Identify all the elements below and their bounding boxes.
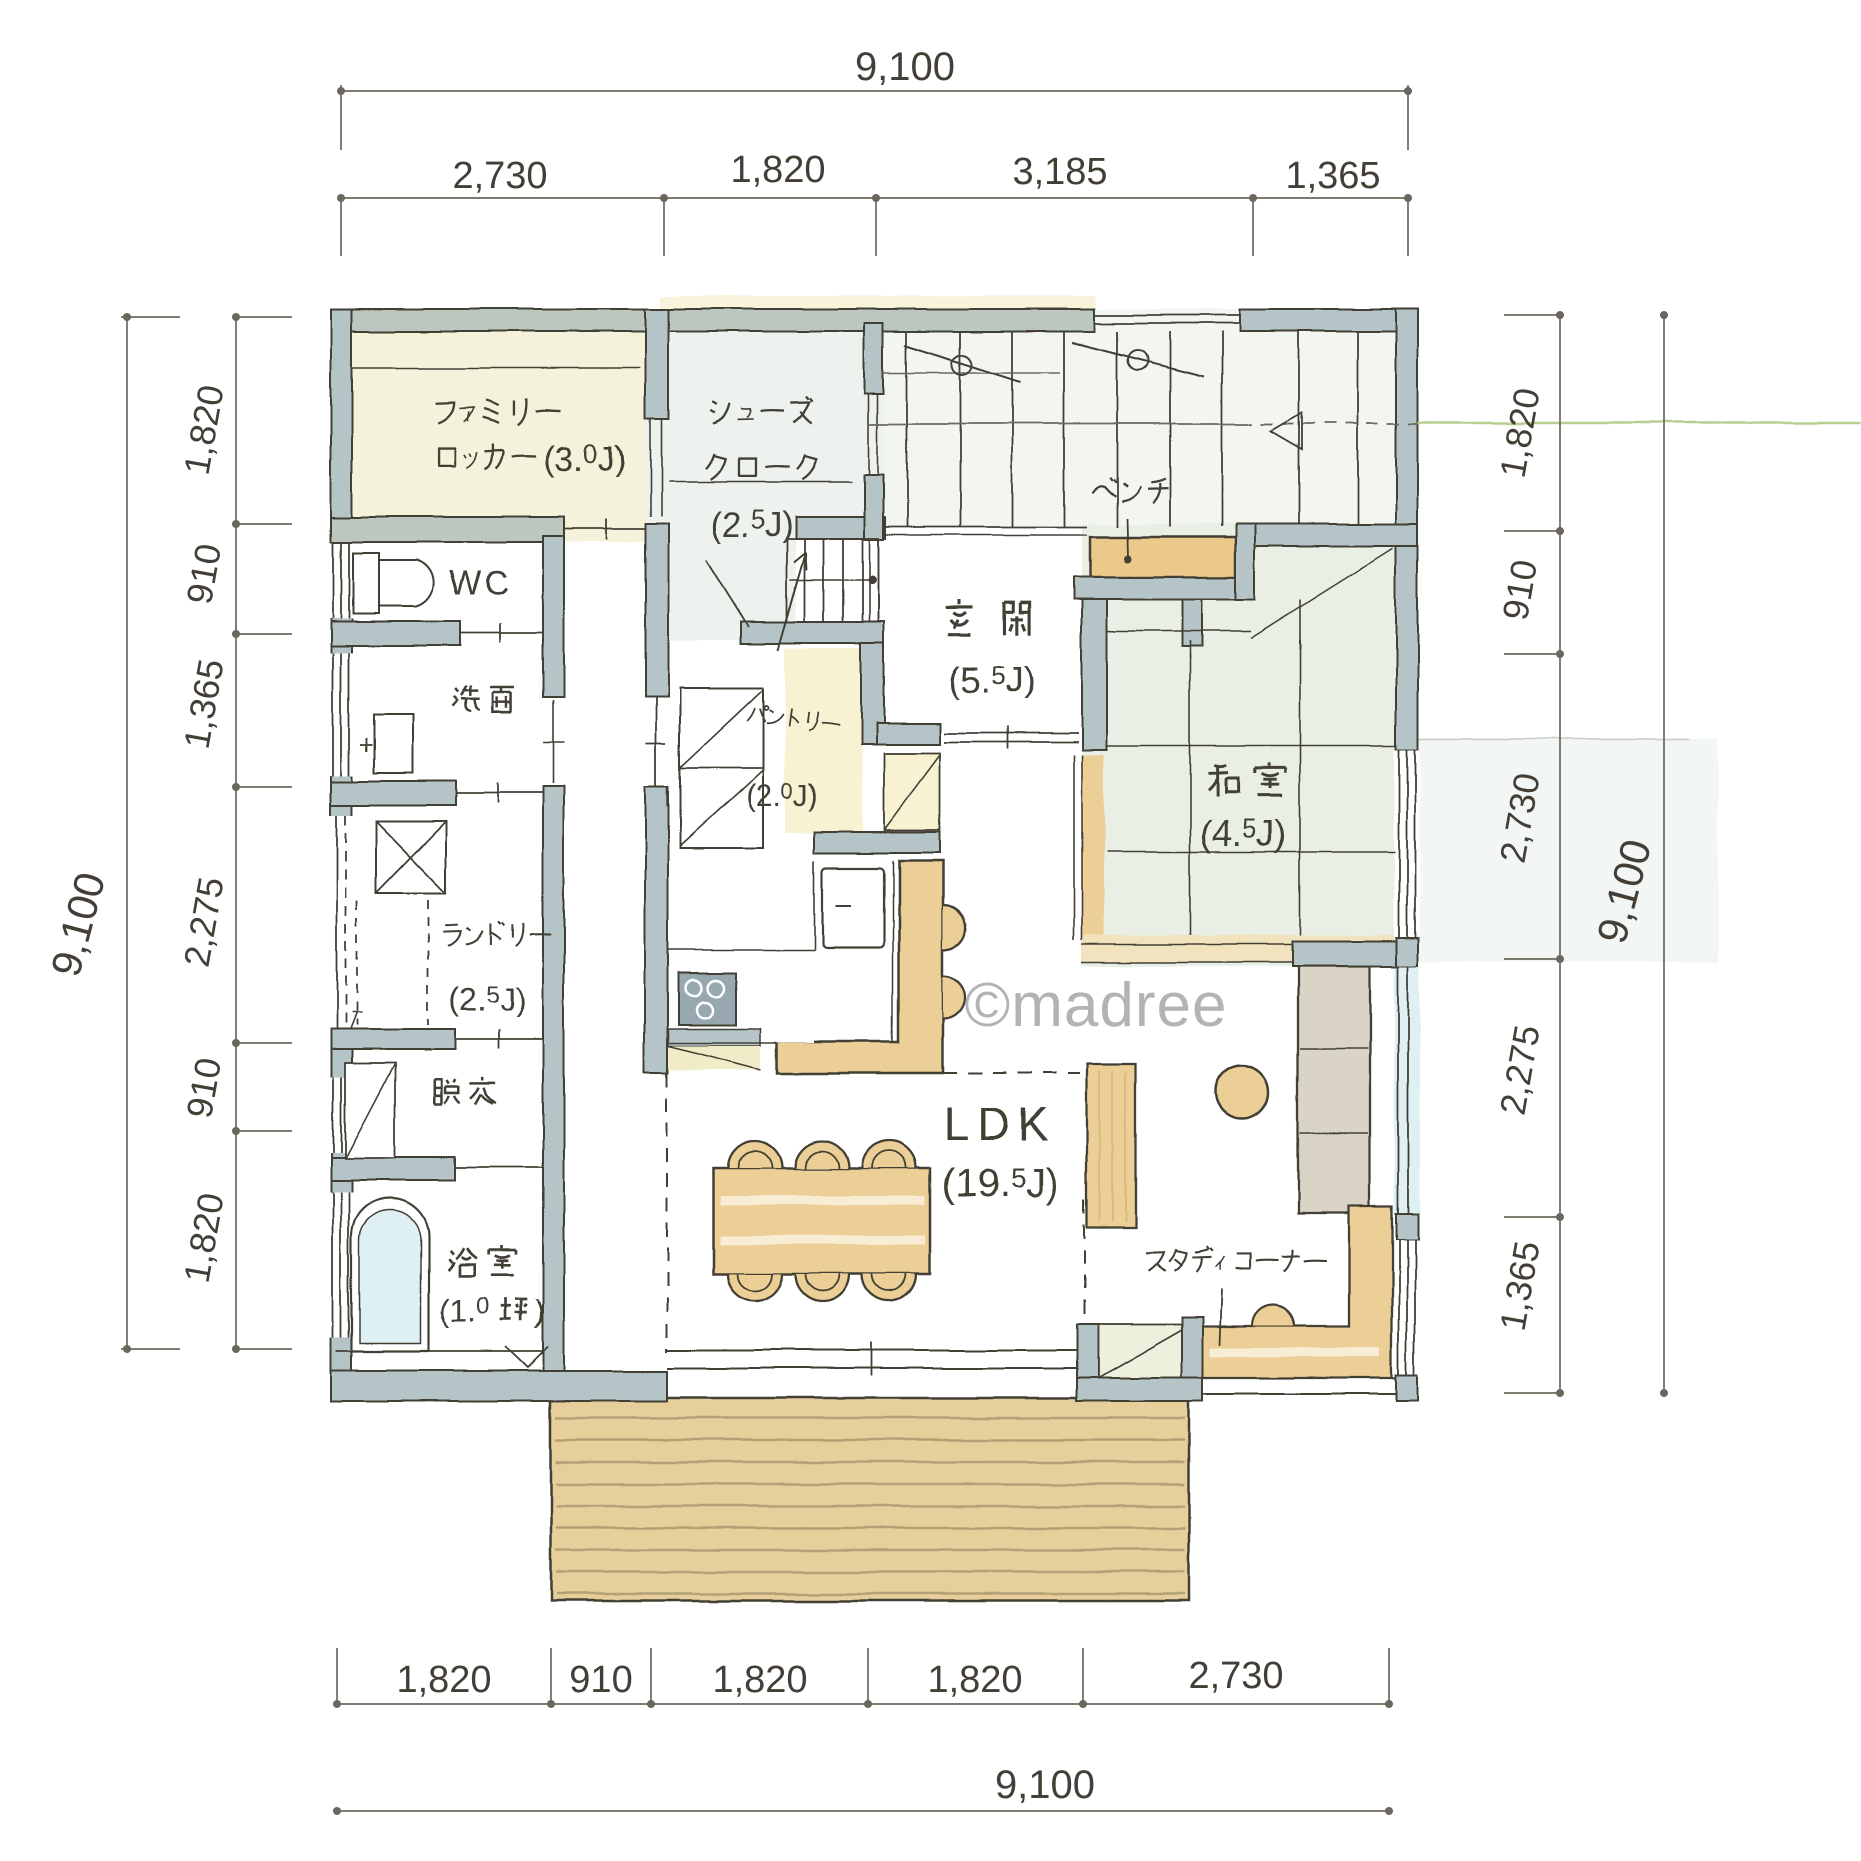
svg-text:3,185: 3,185 bbox=[1012, 151, 1107, 193]
svg-text:LDK: LDK bbox=[943, 1098, 1056, 1150]
svg-text:1,820: 1,820 bbox=[730, 149, 825, 191]
svg-text:2,730: 2,730 bbox=[452, 155, 547, 197]
svg-text:): ) bbox=[535, 1293, 546, 1329]
svg-text:1,820: 1,820 bbox=[712, 1659, 807, 1701]
svg-text:1,365: 1,365 bbox=[1285, 155, 1380, 197]
svg-text:©madree: ©madree bbox=[965, 971, 1228, 1040]
svg-text:910: 910 bbox=[569, 1659, 632, 1701]
svg-text:1,820: 1,820 bbox=[927, 1659, 1022, 1701]
svg-text:2,730: 2,730 bbox=[1188, 1655, 1283, 1697]
svg-text:1,820: 1,820 bbox=[396, 1659, 491, 1701]
svg-text:9,100: 9,100 bbox=[855, 45, 955, 89]
svg-text:9,100: 9,100 bbox=[995, 1763, 1095, 1807]
svg-text:(19.5J): (19.5J) bbox=[941, 1161, 1059, 1205]
svg-text:WC: WC bbox=[449, 564, 512, 602]
